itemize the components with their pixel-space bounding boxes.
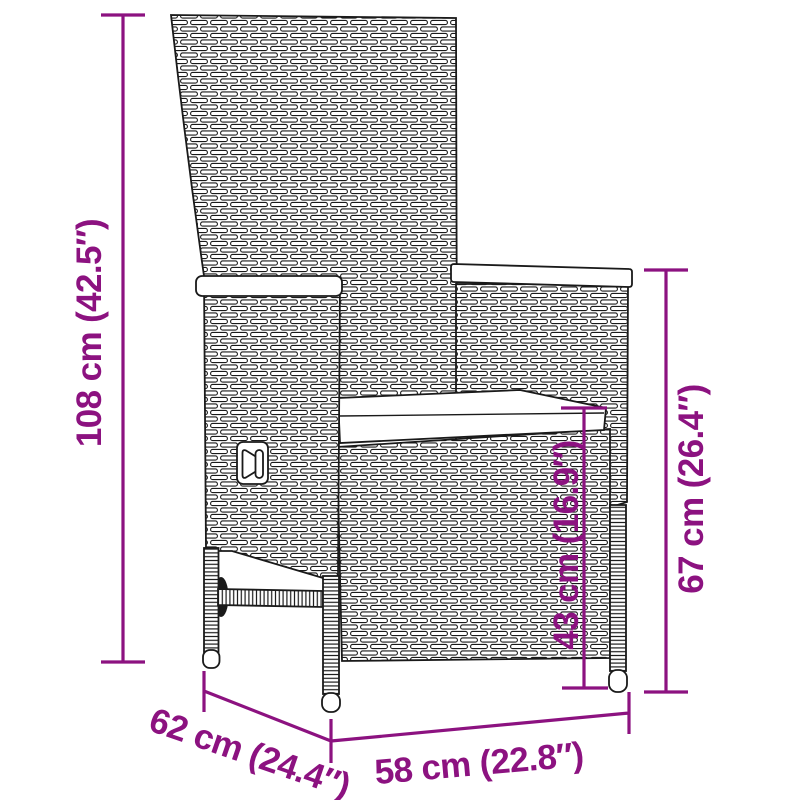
chair-dimension-diagram: 108 cm (42.5″) 67 cm (26.4″) 43 cm (16.9… [0, 0, 800, 800]
back-left-leg [203, 548, 220, 668]
recline-knob [237, 442, 268, 484]
chair-right-armrest [451, 264, 632, 287]
seat-height-label: 43 cm (16.9″) [547, 440, 586, 649]
armrest-height-label: 67 cm (26.4″) [672, 384, 711, 593]
dimension-armrest-height: 67 cm (26.4″) [644, 270, 711, 692]
dimension-seat-width: 58 cm (22.8″) [331, 692, 629, 792]
chair-left-armrest [196, 276, 342, 296]
dimension-total-height: 108 cm (42.5″) [70, 15, 145, 662]
seat-width-label: 58 cm (22.8″) [373, 735, 585, 792]
total-height-label: 108 cm (42.5″) [70, 219, 109, 447]
chair-left-side-panel [204, 278, 340, 580]
front-left-leg [322, 576, 340, 712]
left-stretcher-bar [218, 589, 323, 607]
front-right-leg [609, 505, 627, 692]
seat-depth-label: 62 cm (24.4″) [144, 701, 355, 800]
